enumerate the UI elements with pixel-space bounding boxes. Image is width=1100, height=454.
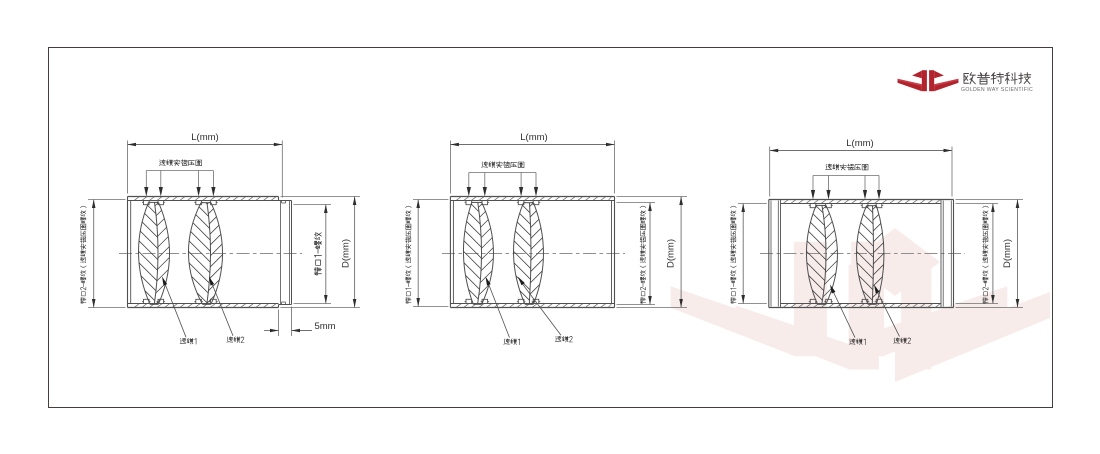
svg-text:D(mm): D(mm) xyxy=(341,239,352,268)
svg-text:L(mm): L(mm) xyxy=(191,132,218,143)
svg-text:GOLDEN WAY SCIENTIFIC: GOLDEN WAY SCIENTIFIC xyxy=(961,87,1033,93)
svg-text:D(mm): D(mm) xyxy=(666,239,677,268)
svg-text:5mm: 5mm xyxy=(314,321,335,332)
svg-text:L(mm): L(mm) xyxy=(846,138,873,149)
svg-text:L(mm): L(mm) xyxy=(520,132,547,143)
svg-text:D(mm): D(mm) xyxy=(1002,239,1013,268)
